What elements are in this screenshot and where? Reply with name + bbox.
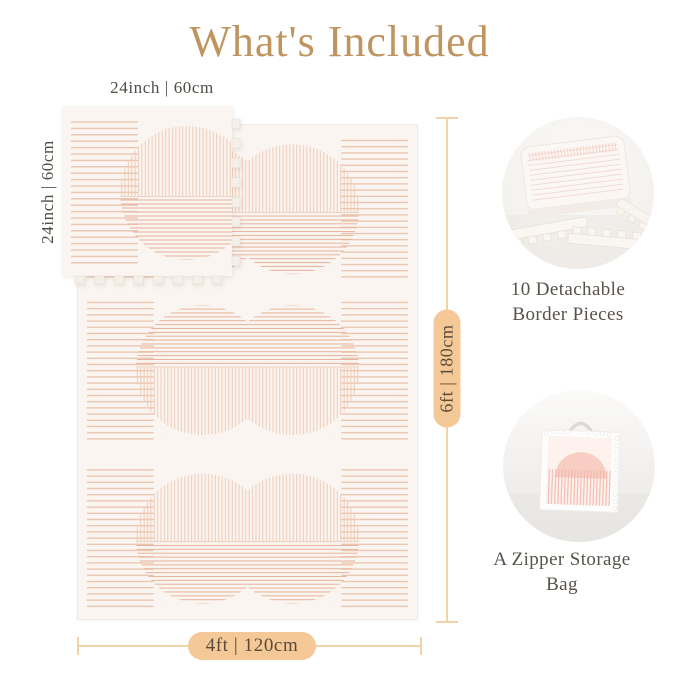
border-pieces-label-line2: Border Pieces bbox=[488, 302, 648, 327]
product-infographic: What's Included 24inch | 60cm 24inch | 6… bbox=[0, 0, 679, 679]
detached-tile-pattern bbox=[62, 106, 242, 286]
border-pieces-label-line1: 10 Detachable bbox=[488, 277, 648, 302]
tile-side-dimension-label: 24inch | 60cm bbox=[38, 112, 58, 272]
height-dimension-pill: 6ft | 180cm bbox=[434, 310, 461, 428]
border-pieces-image bbox=[502, 117, 654, 269]
storage-bag-label: A Zipper Storage Bag bbox=[481, 547, 643, 597]
border-pieces-photo bbox=[502, 117, 654, 269]
width-dimension-pill: 4ft | 120cm bbox=[188, 632, 316, 660]
height-dimension-cap-top bbox=[436, 117, 458, 119]
tile-top-dimension-label: 24inch | 60cm bbox=[62, 78, 262, 98]
bag-contents bbox=[546, 436, 612, 506]
border-pieces-label: 10 Detachable Border Pieces bbox=[488, 277, 648, 327]
zipper-bag bbox=[540, 422, 621, 512]
height-dimension-cap-bottom bbox=[436, 621, 458, 623]
foam-tile-corner bbox=[520, 135, 632, 218]
storage-bag-photo bbox=[503, 390, 655, 542]
width-dimension-cap-right bbox=[420, 637, 422, 655]
page-title: What's Included bbox=[0, 16, 679, 67]
storage-bag-image bbox=[503, 390, 655, 542]
detached-tile-illustration bbox=[62, 106, 242, 286]
width-dimension-cap-left bbox=[77, 637, 79, 655]
